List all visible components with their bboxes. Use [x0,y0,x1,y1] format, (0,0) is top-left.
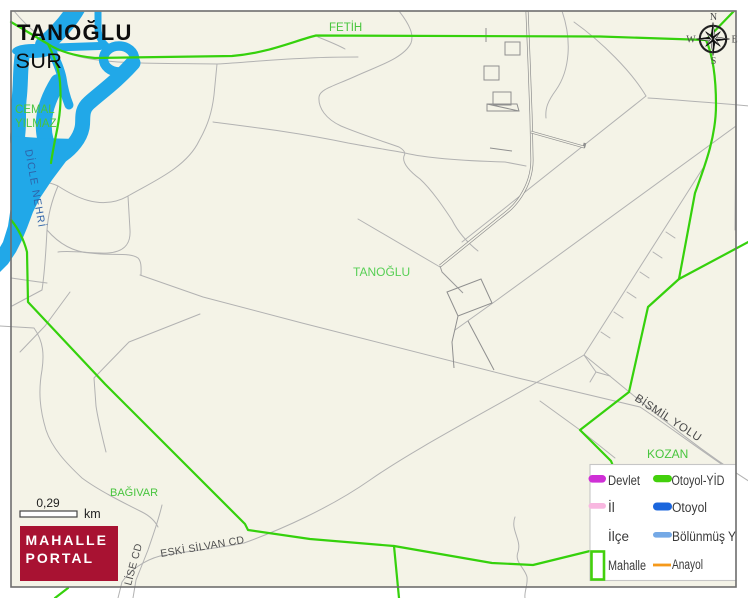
svg-text:Bölünmüş Y: Bölünmüş Y [672,529,736,544]
svg-text:N: N [710,12,717,23]
svg-text:FETİH: FETİH [329,21,362,34]
svg-text:0,29: 0,29 [36,496,60,510]
svg-text:Mahalle: Mahalle [608,558,646,573]
svg-text:Otoyol: Otoyol [672,500,707,515]
svg-text:İlçe: İlçe [608,529,629,544]
svg-text:S: S [711,56,717,67]
svg-text:KOZAN: KOZAN [647,447,688,461]
svg-text:PORTAL: PORTAL [26,550,95,566]
svg-text:İl: İl [608,500,615,515]
svg-text:W: W [686,35,696,46]
svg-text:Anayol: Anayol [672,557,703,572]
svg-text:TANOĞLU: TANOĞLU [17,20,133,45]
svg-text:TANOĞLU: TANOĞLU [353,264,410,279]
svg-text:km: km [84,507,101,521]
svg-text:CEMAL: CEMAL [15,104,55,116]
svg-text:Otoyol-YİD: Otoyol-YİD [672,473,725,488]
svg-text:MAHALLE: MAHALLE [26,532,108,548]
svg-text:YILMAZ: YILMAZ [15,118,57,130]
svg-text:Devlet: Devlet [608,473,640,488]
svg-text:BAĞIVAR: BAĞIVAR [110,486,158,499]
svg-text:SUR: SUR [16,49,63,73]
